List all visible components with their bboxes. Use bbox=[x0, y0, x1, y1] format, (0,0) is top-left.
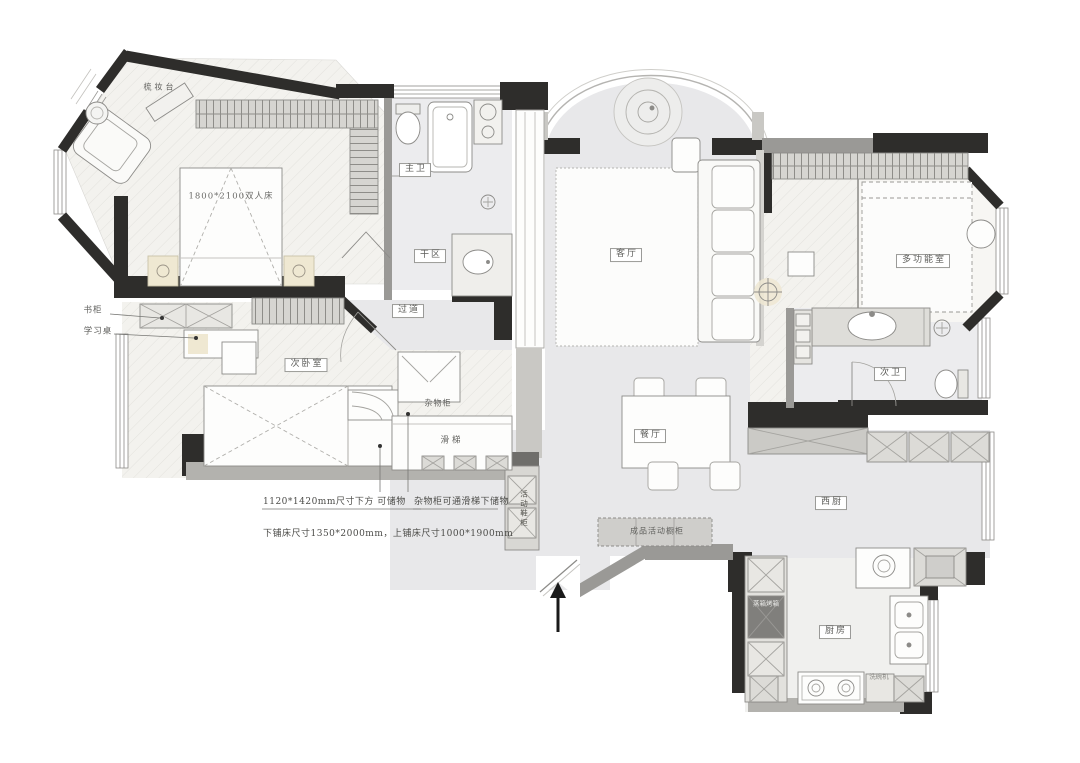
label-living-room: 客厅 bbox=[610, 248, 642, 262]
label-study-desk: 学习桌 bbox=[84, 327, 113, 336]
label-kitchen: 厨房 bbox=[819, 625, 851, 639]
label-hallway: 过道 bbox=[392, 304, 424, 318]
annotation-bunk-bed-sizes: 下铺床尺寸1350*2000mm，上铺床尺寸1000*1900mm bbox=[263, 526, 513, 539]
label-mobile-cupboard: 成品活动橱柜 bbox=[630, 528, 684, 537]
label-sundry-cabinet: 杂物柜 bbox=[425, 400, 452, 409]
label-master-bed-size: 1800*2100双人床 bbox=[188, 192, 273, 201]
label-dressing-table: 梳妆台 bbox=[144, 84, 177, 93]
label-mobile-shoe-cabinet: 活动鞋柜 bbox=[519, 490, 530, 528]
label-second-bedroom: 次卧室 bbox=[284, 358, 327, 372]
label-dining-room: 餐厅 bbox=[634, 429, 666, 443]
label-master-bath: 主卫 bbox=[399, 163, 431, 177]
label-layer: 梳妆台 1800*2100双人床 主卫 干区 过道 客厅 多功能室 次卫 餐厅 … bbox=[0, 0, 1080, 763]
label-bookcase: 书柜 bbox=[83, 306, 102, 315]
annotation-cabinet-slide-storage: 杂物柜可通滑梯下储物 bbox=[414, 494, 509, 507]
label-multi-function-room: 多功能室 bbox=[896, 254, 950, 268]
floor-plan-canvas: 梳妆台 1800*2100双人床 主卫 干区 过道 客厅 多功能室 次卫 餐厅 … bbox=[0, 0, 1080, 763]
label-dishwasher: 洗碗机 bbox=[869, 673, 889, 680]
label-slide: 滑梯 bbox=[440, 436, 463, 445]
label-steam-oven-cabinet: 蒸箱烤箱 bbox=[753, 600, 779, 607]
label-dry-area: 干区 bbox=[414, 249, 446, 263]
annotation-under-bed-storage: 1120*1420mm尺寸下方 可储物 bbox=[263, 494, 406, 507]
label-west-kitchen: 西厨 bbox=[815, 496, 847, 510]
label-second-bath: 次卫 bbox=[874, 367, 906, 381]
